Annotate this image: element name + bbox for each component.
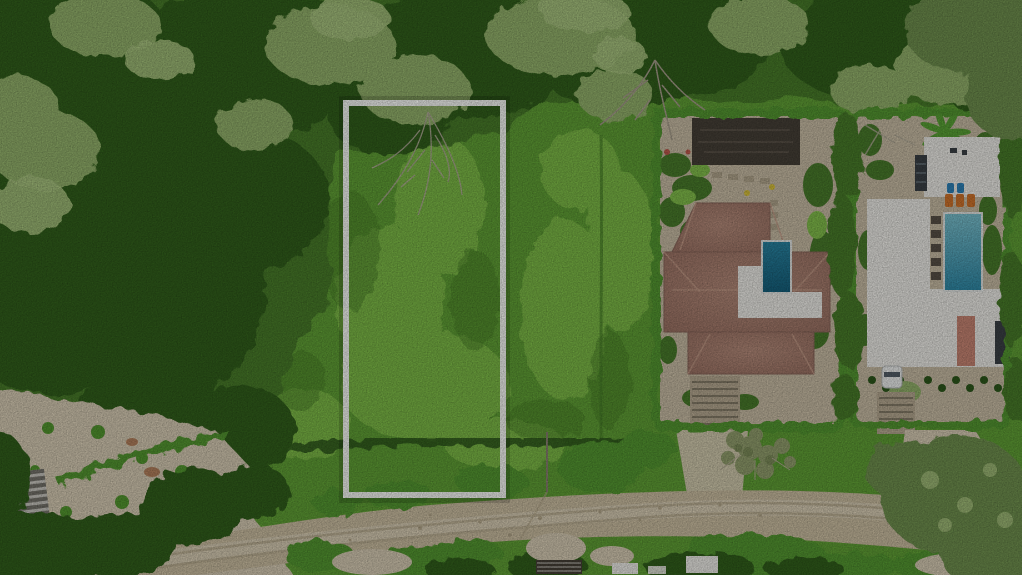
- photo-grain-overlay: [0, 0, 1022, 575]
- aerial-photo: [0, 0, 1022, 575]
- aerial-photo-canvas: [0, 0, 1022, 575]
